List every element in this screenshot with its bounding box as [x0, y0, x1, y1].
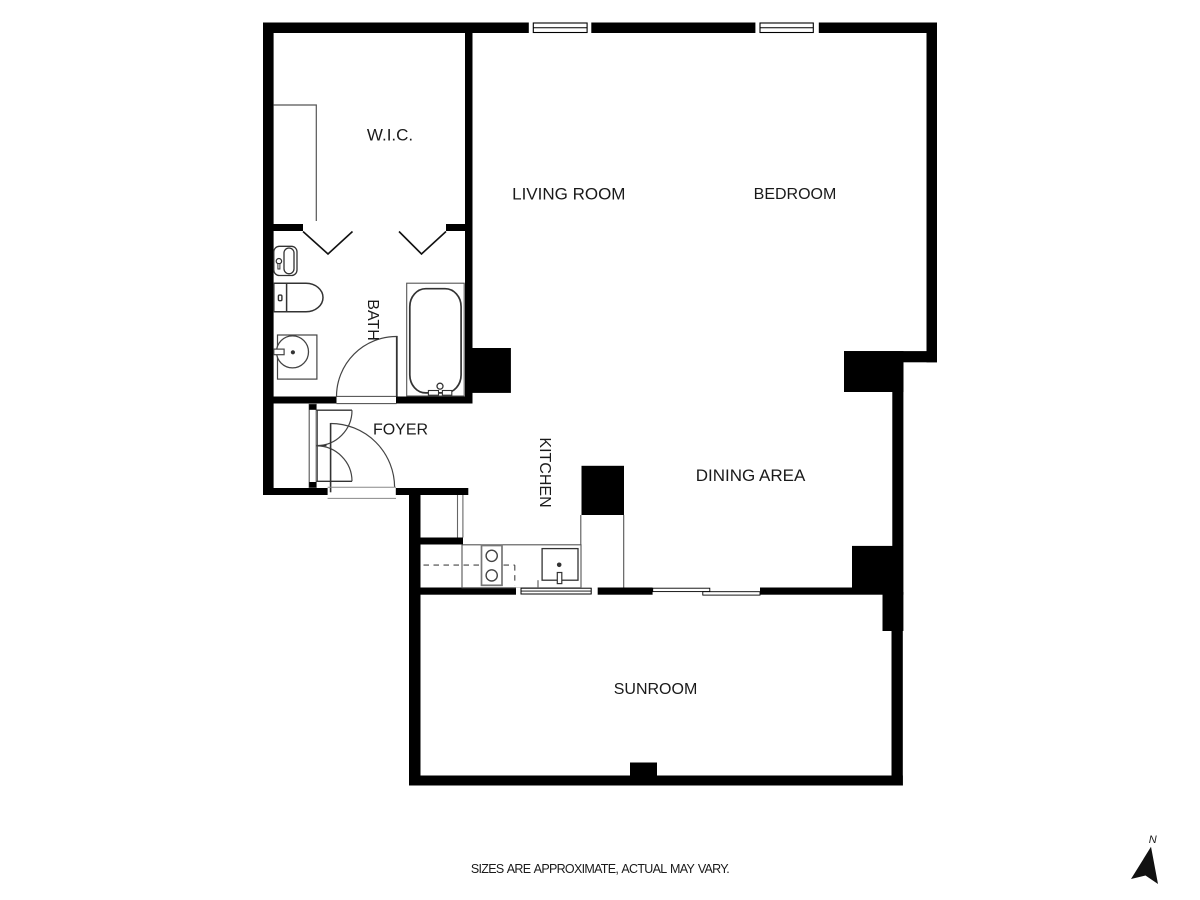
svg-text:FOYER: FOYER [373, 422, 428, 439]
svg-text:BEDROOM: BEDROOM [754, 186, 837, 203]
svg-text:BATH: BATH [364, 299, 381, 340]
svg-text:SUNROOM: SUNROOM [614, 681, 698, 698]
svg-text:LIVING ROOM: LIVING ROOM [512, 184, 625, 203]
svg-text:DINING AREA: DINING AREA [696, 466, 806, 485]
svg-text:W.I.C.: W.I.C. [367, 126, 413, 145]
svg-text:KITCHEN: KITCHEN [536, 437, 553, 507]
svg-text:N: N [1149, 834, 1157, 846]
svg-text:SIZES ARE APPROXIMATE, ACTUAL: SIZES ARE APPROXIMATE, ACTUAL MAY VARY. [471, 862, 729, 876]
